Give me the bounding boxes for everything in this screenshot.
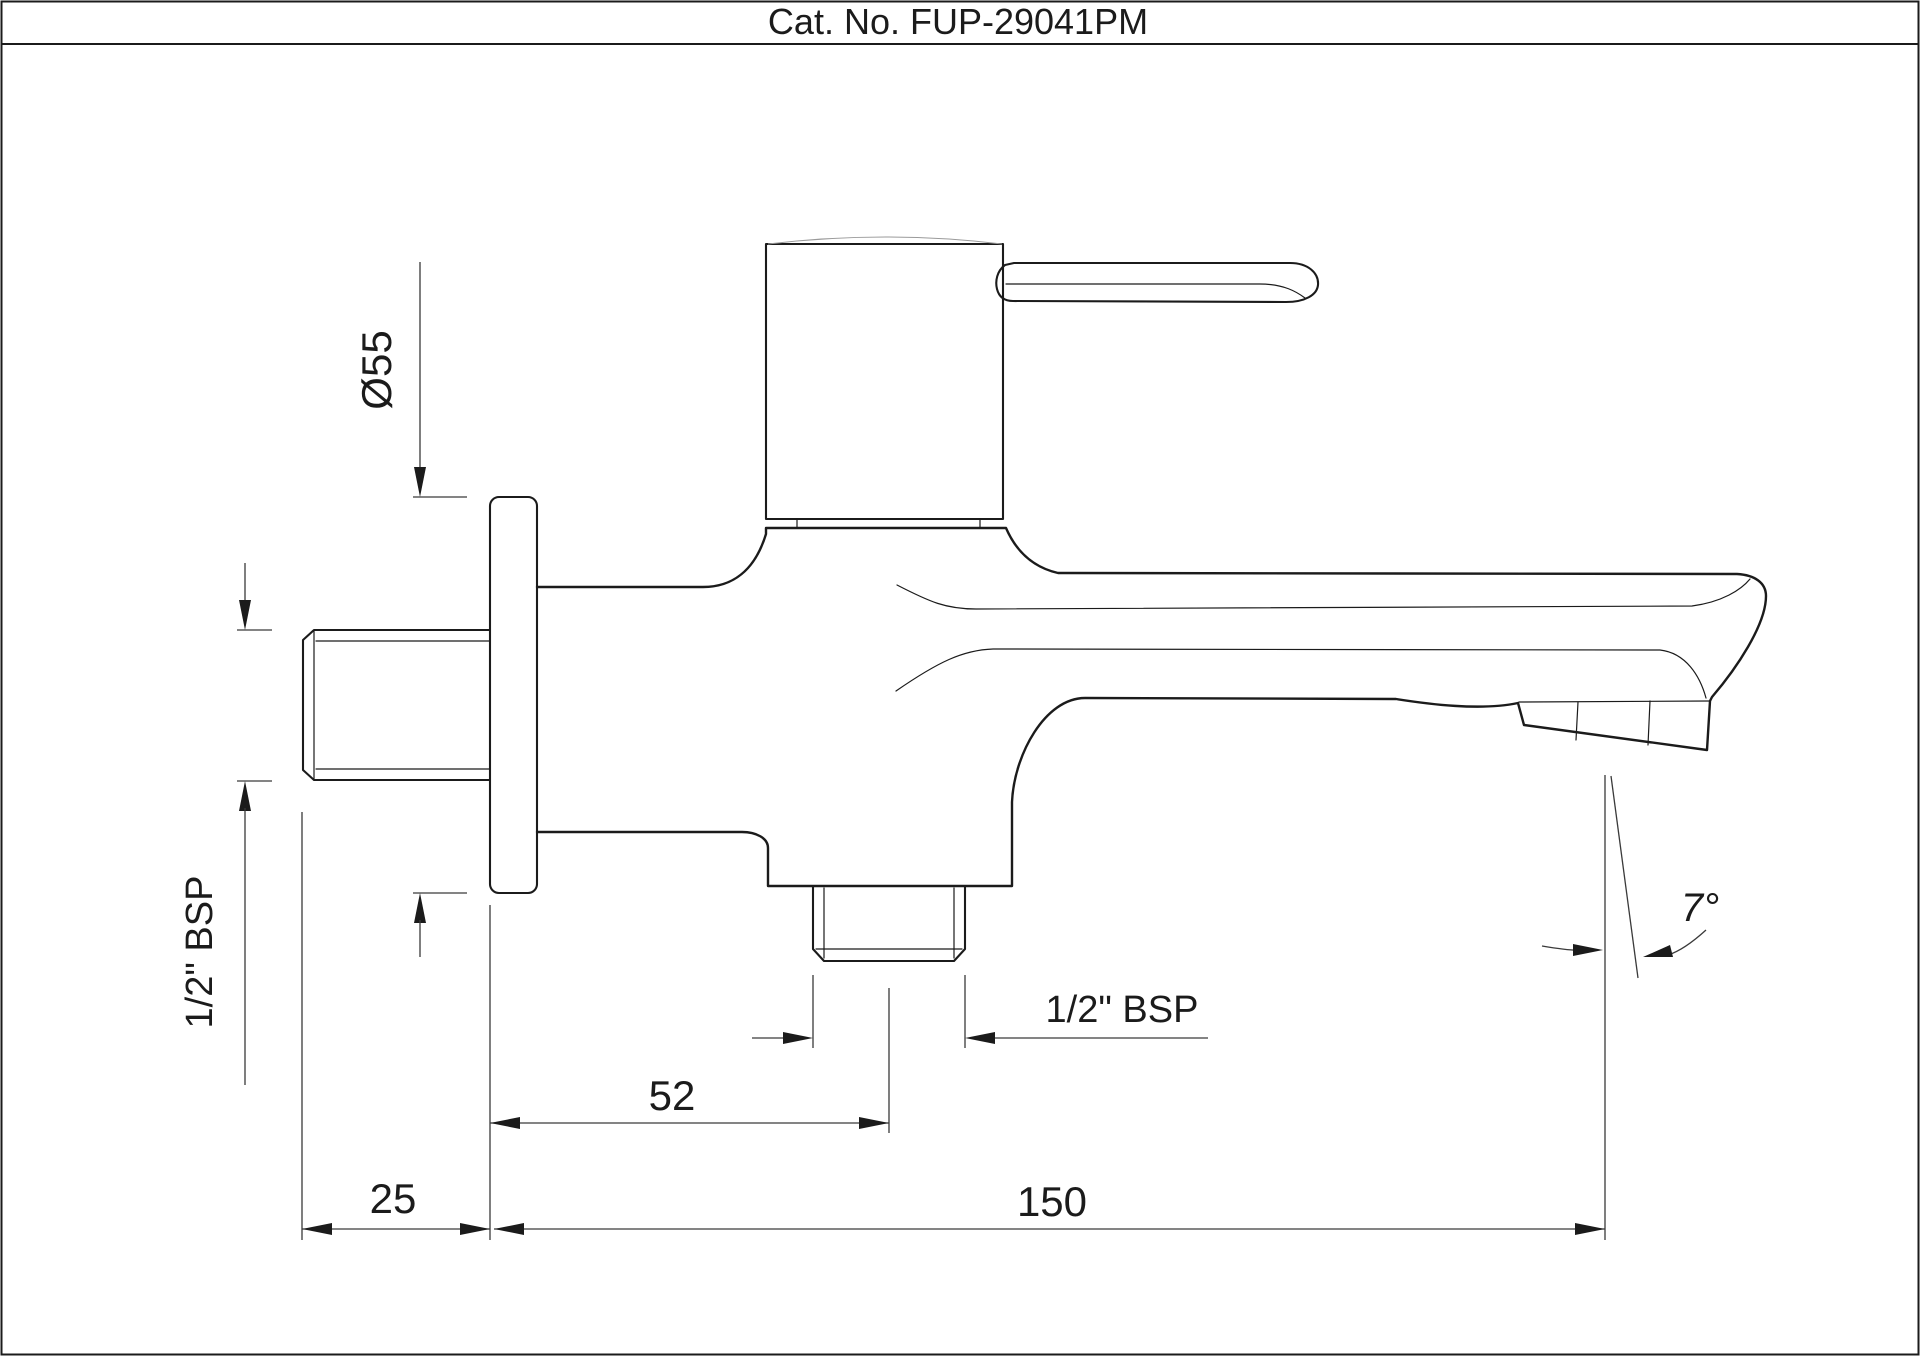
bottom-spigot bbox=[813, 886, 965, 961]
wall-inlet-pipe bbox=[303, 630, 490, 780]
outlet-arrow-right-pointing bbox=[783, 1032, 813, 1044]
dim55-arrow-up bbox=[414, 893, 426, 923]
spout-upper-contour bbox=[897, 579, 1750, 609]
cartridge-housing bbox=[766, 237, 1003, 528]
dim25-label: 25 bbox=[370, 1175, 417, 1222]
spigot-outline bbox=[813, 886, 965, 961]
dim52-arrow-left bbox=[490, 1117, 520, 1129]
cartridge-body bbox=[766, 244, 1003, 519]
dim55-label: Ø55 bbox=[353, 330, 400, 409]
dim52-arrow-right bbox=[859, 1117, 889, 1129]
dimension-flange-diameter: Ø55 bbox=[353, 262, 467, 957]
lever-handle bbox=[996, 263, 1318, 302]
angle-arrow-right-pointing bbox=[1573, 944, 1603, 956]
aerator-cap-top-line bbox=[1519, 701, 1709, 702]
wall-flange bbox=[490, 497, 537, 893]
aerator-facet-line-left bbox=[1576, 702, 1578, 740]
dim55-arrow-down bbox=[414, 467, 426, 497]
technical-drawing-canvas: Cat. No. FUP-29041PM bbox=[0, 0, 1920, 1356]
dim25-arrow-right bbox=[460, 1223, 490, 1235]
aerator-facet-line-right bbox=[1648, 701, 1650, 745]
dim150-arrow-left bbox=[494, 1223, 524, 1235]
inlet-dim-arrow-up bbox=[239, 781, 251, 811]
angle-slanted-line bbox=[1611, 776, 1638, 978]
body-spout-outline bbox=[537, 528, 1766, 886]
dimension-outlet-offset: 52 bbox=[490, 988, 889, 1133]
inlet-pipe-outline bbox=[303, 630, 490, 780]
angle-arrow-left-pointing bbox=[1643, 945, 1673, 957]
inlet-dim-arrow-down bbox=[239, 600, 251, 630]
dim25-arrow-left bbox=[302, 1223, 332, 1235]
outlet-arrow-left-pointing bbox=[965, 1032, 995, 1044]
spout-lower-contour bbox=[896, 649, 1706, 698]
dim150-label: 150 bbox=[1017, 1178, 1087, 1225]
lever-handle-inner-line bbox=[1006, 284, 1305, 298]
outlet-thread-label: 1/2" BSP bbox=[1046, 989, 1199, 1031]
angle-label: 7° bbox=[1681, 886, 1719, 930]
drawing-sheet: Cat. No. FUP-29041PM bbox=[0, 0, 1920, 1356]
dimension-inlet-thread: 1/2" BSP bbox=[179, 563, 272, 1085]
dim150-arrow-right bbox=[1575, 1223, 1605, 1235]
angle-arc bbox=[1668, 930, 1706, 955]
sheet-border bbox=[2, 2, 1919, 1355]
inlet-thread-label: 1/2" BSP bbox=[179, 876, 221, 1029]
dimension-wall-thread-length: 25 bbox=[302, 812, 490, 1240]
dimension-spout-angle: 7° bbox=[1542, 776, 1719, 978]
dim52-label: 52 bbox=[649, 1072, 696, 1119]
lever-handle-outline bbox=[996, 263, 1318, 302]
catalog-number-title: Cat. No. FUP-29041PM bbox=[768, 1, 1148, 42]
dimension-outlet-thread: 1/2" BSP bbox=[752, 975, 1208, 1048]
faucet-geometry bbox=[303, 237, 1766, 961]
